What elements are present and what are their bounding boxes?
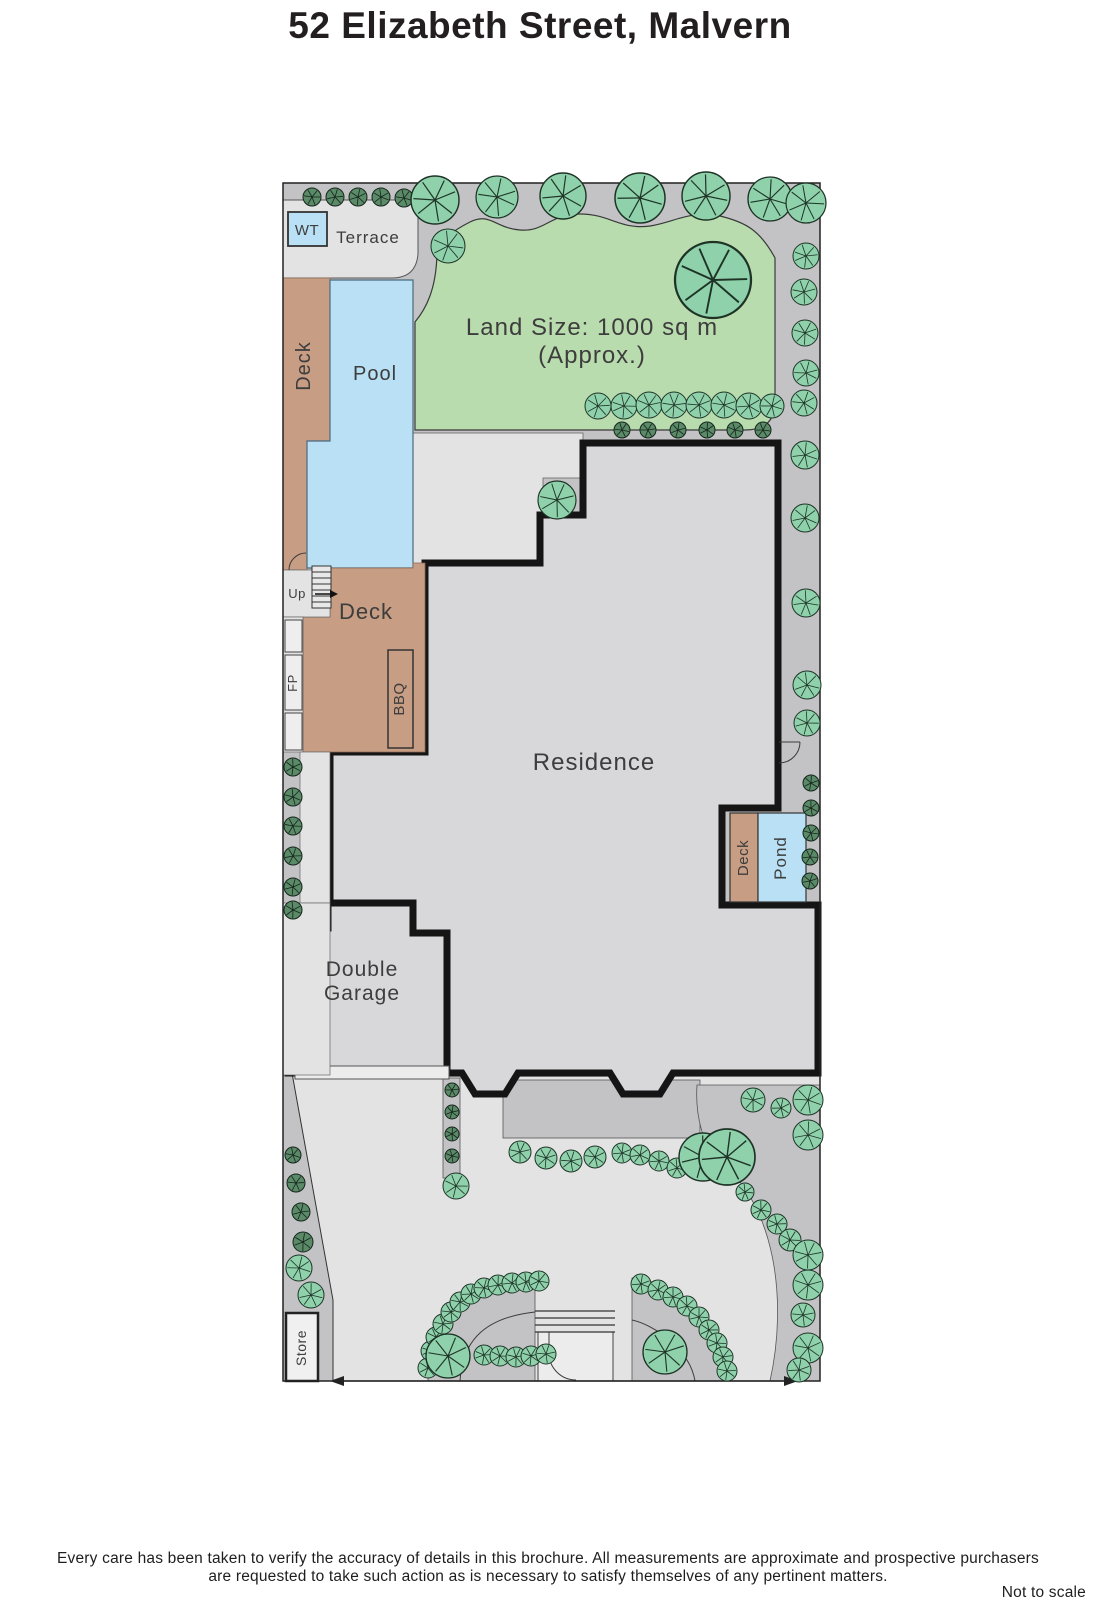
shrub-icon xyxy=(284,847,302,865)
pond-label: Pond xyxy=(771,836,790,880)
shrub-icon xyxy=(727,422,743,438)
tree-icon xyxy=(585,393,611,419)
tree-icon xyxy=(786,183,826,223)
not-to-scale-note: Not to scale xyxy=(1002,1584,1086,1600)
tree-icon xyxy=(748,177,792,221)
wt-label: WT xyxy=(295,222,319,239)
tree-icon xyxy=(643,1330,687,1374)
fp-label: FP xyxy=(285,674,300,692)
tree-icon xyxy=(741,1088,765,1112)
shrub-icon xyxy=(395,189,413,207)
side-approach xyxy=(283,903,330,1075)
tree-icon xyxy=(793,671,821,699)
tree-icon xyxy=(431,229,465,263)
shrub-icon xyxy=(640,422,656,438)
land-size-label-2: (Approx.) xyxy=(538,342,646,369)
deck-west-label: Deck xyxy=(293,341,315,391)
tree-icon xyxy=(286,1255,312,1281)
tree-icon xyxy=(711,392,737,418)
tree-icon xyxy=(675,242,751,318)
site-plan-canvas: 52 Elizabeth Street, Malvern xyxy=(0,0,1096,1600)
shrub-icon xyxy=(349,188,367,206)
shrub-icon xyxy=(803,825,819,841)
pool-label: Pool xyxy=(353,363,397,385)
tree-icon xyxy=(787,1358,811,1382)
shrub-icon xyxy=(284,901,302,919)
rear-path-strip xyxy=(503,1080,700,1138)
garage-label-1: Double xyxy=(326,958,399,981)
tree-icon xyxy=(717,1361,737,1381)
bbq-label: BBQ xyxy=(391,682,408,715)
tree-icon xyxy=(615,173,665,223)
terrace-label: Terrace xyxy=(336,228,400,247)
tree-icon xyxy=(793,243,819,269)
tree-icon xyxy=(535,1147,557,1169)
shrub-icon xyxy=(445,1105,459,1119)
tree-icon xyxy=(509,1141,531,1163)
shrub-icon xyxy=(802,873,818,889)
shrub-icon xyxy=(292,1203,310,1221)
tree-icon xyxy=(791,441,819,469)
side-walkway xyxy=(300,752,330,903)
land-size-label-1: Land Size: 1000 sq m xyxy=(466,314,718,341)
shrub-icon xyxy=(614,422,630,438)
shrub-icon xyxy=(372,188,390,206)
tree-icon xyxy=(791,390,817,416)
shrub-icon xyxy=(445,1083,459,1097)
shrub-icon xyxy=(803,775,819,791)
tree-icon xyxy=(411,176,459,224)
tree-icon xyxy=(793,360,819,386)
tree-icon xyxy=(793,1120,823,1150)
tree-icon xyxy=(584,1146,606,1168)
tree-icon xyxy=(751,1200,771,1220)
planter-box-1 xyxy=(285,620,302,652)
tree-icon xyxy=(476,176,518,218)
shrub-icon xyxy=(699,422,715,438)
residence-label: Residence xyxy=(533,749,655,776)
tree-icon xyxy=(794,710,820,736)
tree-icon xyxy=(686,392,712,418)
shrub-icon xyxy=(284,788,302,806)
site-plan-page: 52 Elizabeth Street, Malvern xyxy=(0,0,1096,1600)
shrub-icon xyxy=(284,817,302,835)
tree-icon xyxy=(611,393,637,419)
tree-icon xyxy=(426,1334,470,1378)
tree-icon xyxy=(791,504,819,532)
page-title: 52 Elizabeth Street, Malvern xyxy=(288,5,791,46)
tree-icon xyxy=(792,589,820,617)
shrub-icon xyxy=(802,849,818,865)
tree-icon xyxy=(538,481,576,519)
garage-label-2: Garage xyxy=(324,982,400,1005)
tree-icon xyxy=(771,1098,791,1118)
store-label: Store xyxy=(293,1330,309,1366)
deck-rear-label: Deck xyxy=(735,840,752,876)
tree-icon xyxy=(612,1143,632,1163)
planter-box-2 xyxy=(285,713,302,750)
shrub-icon xyxy=(284,878,302,896)
deck-main-label: Deck xyxy=(339,599,393,624)
tree-icon xyxy=(682,172,730,220)
tree-icon xyxy=(529,1271,549,1291)
shrub-icon xyxy=(445,1149,459,1163)
shrub-icon xyxy=(755,422,771,438)
tree-icon xyxy=(699,1129,755,1185)
shrub-icon xyxy=(293,1232,313,1252)
disclaimer-line-1: Every care has been taken to verify the … xyxy=(57,1550,1039,1567)
tree-icon xyxy=(536,1344,556,1364)
shrub-icon xyxy=(287,1174,305,1192)
shrub-icon xyxy=(670,422,686,438)
shrub-icon xyxy=(285,1147,301,1163)
up-label: Up xyxy=(288,586,306,601)
tree-icon xyxy=(661,392,687,418)
shrub-icon xyxy=(803,800,819,816)
tree-icon xyxy=(793,1240,823,1270)
tree-icon xyxy=(443,1173,469,1199)
tree-icon xyxy=(793,1270,823,1300)
tree-icon xyxy=(298,1282,324,1308)
tree-icon xyxy=(791,279,817,305)
tree-icon xyxy=(792,320,818,346)
shrub-icon xyxy=(445,1127,459,1141)
tree-icon xyxy=(636,392,662,418)
disclaimer-line-2: are requested to take such action as is … xyxy=(208,1568,887,1585)
tree-icon xyxy=(560,1150,582,1172)
shrub-icon xyxy=(326,188,344,206)
tree-icon xyxy=(736,393,762,419)
tree-icon xyxy=(793,1085,823,1115)
tree-icon xyxy=(649,1151,669,1171)
shrub-icon xyxy=(303,188,321,206)
tree-icon xyxy=(791,1303,815,1327)
tree-icon xyxy=(540,173,586,219)
tree-icon xyxy=(630,1145,650,1165)
shrub-icon xyxy=(284,758,302,776)
tree-icon xyxy=(736,1183,754,1201)
tree-icon xyxy=(760,394,784,418)
